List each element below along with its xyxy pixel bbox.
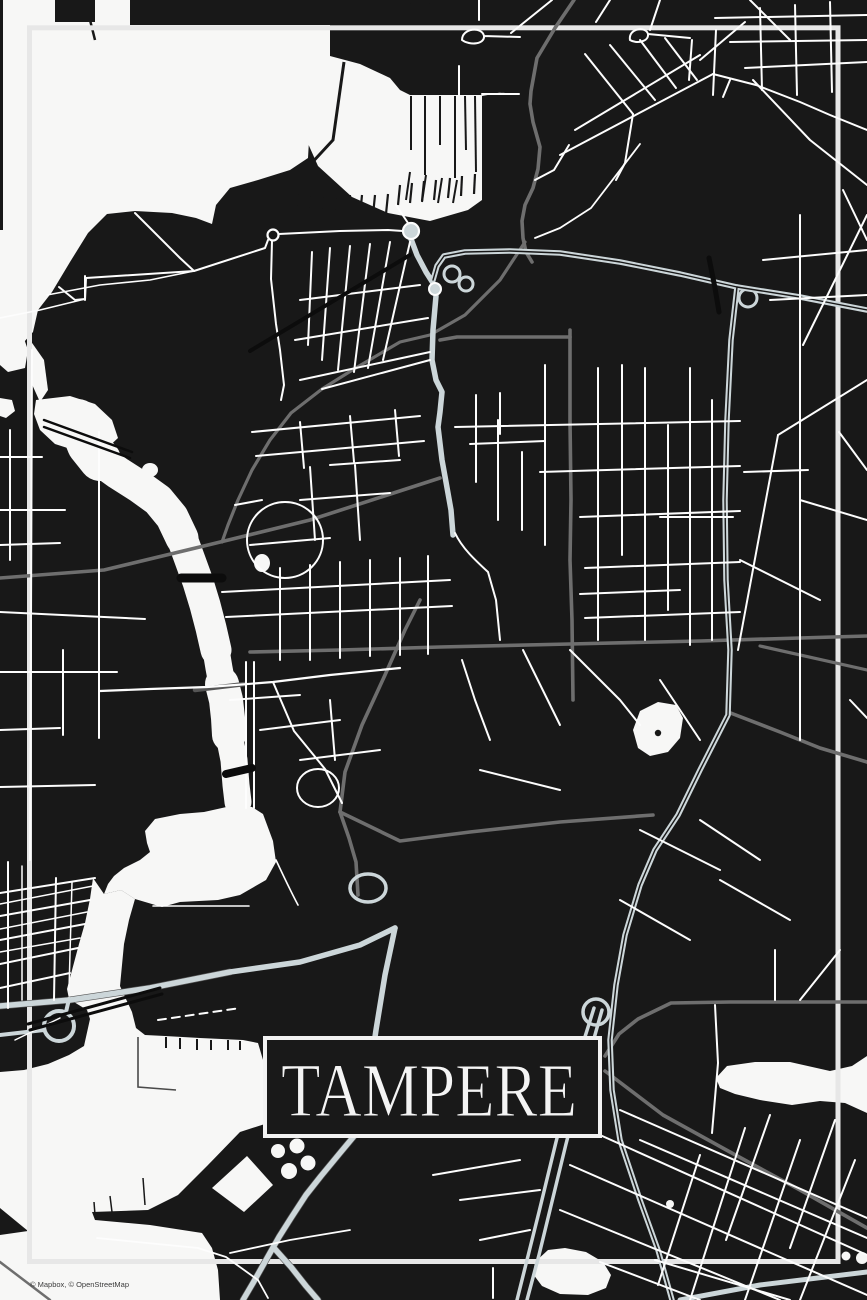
svg-text:TAMPERE: TAMPERE <box>281 1049 577 1133</box>
svg-text:© Mapbox, © OpenStreetMap: © Mapbox, © OpenStreetMap <box>30 1280 129 1289</box>
